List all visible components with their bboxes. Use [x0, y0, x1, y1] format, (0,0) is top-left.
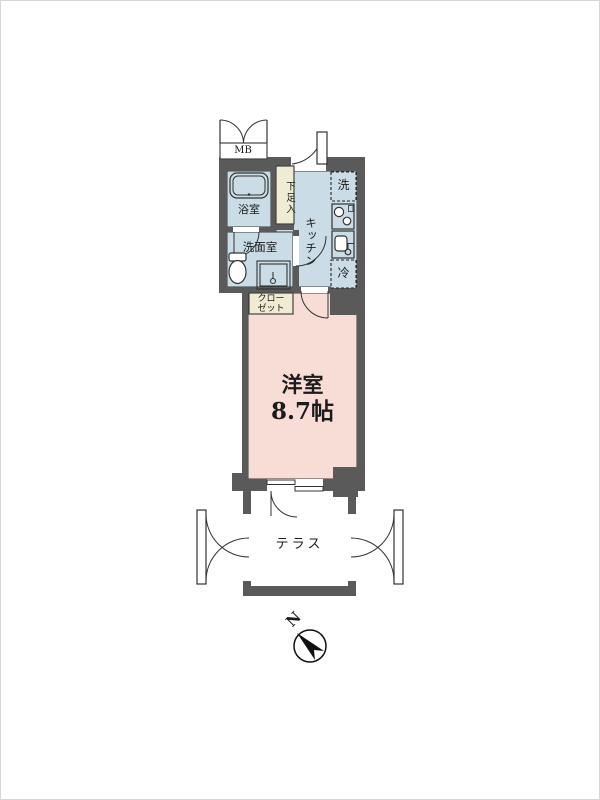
- washer-label: 洗: [331, 179, 356, 193]
- terrace-left-doors: [197, 510, 249, 584]
- bathroom-label: 浴室: [227, 204, 271, 217]
- main-room-name: 洋室: [248, 372, 357, 397]
- terrace-right-doors: [351, 510, 403, 584]
- terrace-label: テラス: [251, 538, 348, 553]
- closet-label: クロー ゼット: [249, 295, 293, 314]
- fridge-label: 冷: [331, 267, 356, 281]
- closet-label-line2: ゼット: [249, 305, 293, 315]
- washroom-label: 洗面室: [227, 241, 293, 254]
- main-room-label: 洋室 8.7帖: [248, 372, 357, 426]
- meter-box-label: MB: [219, 145, 267, 157]
- main-room-size: 8.7帖: [248, 397, 357, 426]
- kitchen-label: キッチン: [300, 212, 317, 272]
- compass-icon: [294, 630, 326, 662]
- toilet-icon: [229, 253, 246, 284]
- floorplan-page: MB 浴室 下足入 キッチン 洗 冷 洗面室 クロー ゼット 洋室 8.7帖 テ…: [0, 0, 600, 800]
- sink-icon: [332, 231, 354, 258]
- stove-icon: [332, 204, 354, 229]
- shoe-cabinet-label: 下足入: [277, 174, 294, 222]
